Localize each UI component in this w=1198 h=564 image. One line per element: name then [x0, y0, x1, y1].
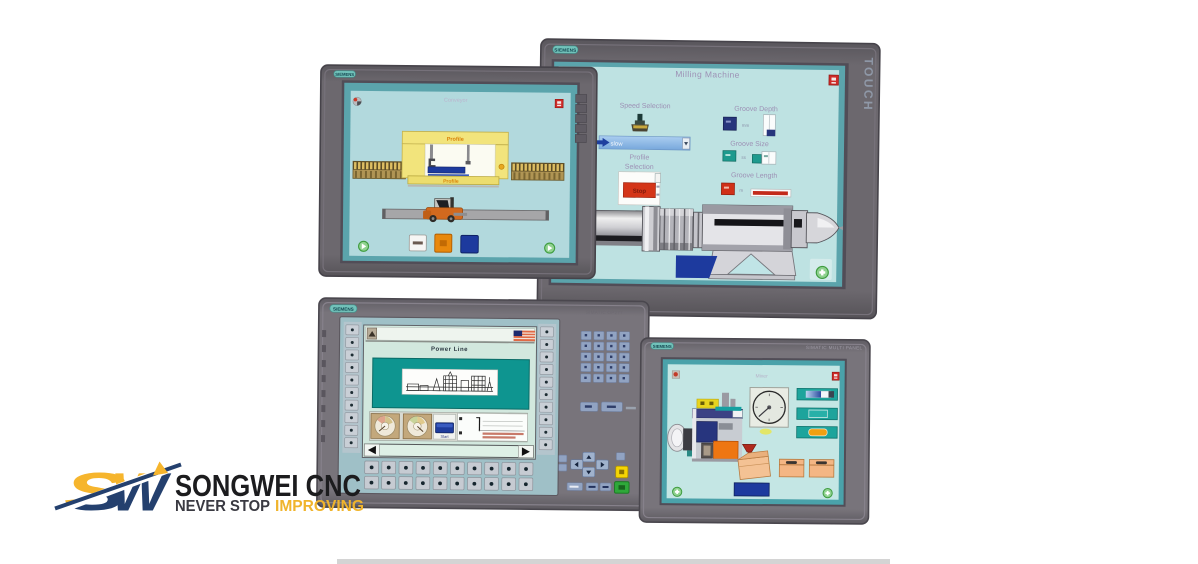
- svg-text:IMPROVING: IMPROVING: [275, 498, 364, 515]
- svg-text:Power Line: Power Line: [431, 347, 468, 353]
- svg-text:NEVER STOP: NEVER STOP: [175, 498, 270, 515]
- svg-text:Selection: Selection: [625, 164, 654, 171]
- svg-text:Groove Length: Groove Length: [731, 172, 778, 180]
- svg-text:SIEMENS: SIEMENS: [335, 72, 354, 77]
- svg-text:Profile: Profile: [629, 154, 649, 161]
- svg-text:slow: slow: [611, 141, 624, 147]
- svg-text:SIMATIC OP277: SIMATIC OP277: [586, 310, 623, 315]
- svg-text:SIEMENS: SIEMENS: [554, 47, 576, 52]
- svg-text:Conveyor: Conveyor: [444, 98, 468, 104]
- svg-text:Groove Size: Groove Size: [730, 141, 769, 149]
- svg-text:Profile: Profile: [447, 137, 464, 143]
- svg-text:mm: mm: [742, 123, 750, 128]
- svg-text:Groove Depth: Groove Depth: [734, 106, 778, 114]
- svg-text:SIEMENS: SIEMENS: [333, 307, 354, 312]
- svg-text:Start: Start: [441, 435, 450, 439]
- svg-text:Mixer: Mixer: [756, 374, 769, 380]
- svg-text:Speed Selection: Speed Selection: [620, 103, 671, 111]
- svg-text:m: m: [739, 188, 743, 193]
- svg-text:SIMATIC MULTI PANEL: SIMATIC MULTI PANEL: [806, 345, 863, 350]
- svg-text:Profile: Profile: [443, 179, 459, 185]
- svg-text:TOUCH: TOUCH: [861, 57, 876, 112]
- svg-text:Stop: Stop: [633, 189, 647, 195]
- svg-text:SIEMENS: SIEMENS: [653, 344, 672, 349]
- svg-text:Milling Machine: Milling Machine: [675, 69, 740, 80]
